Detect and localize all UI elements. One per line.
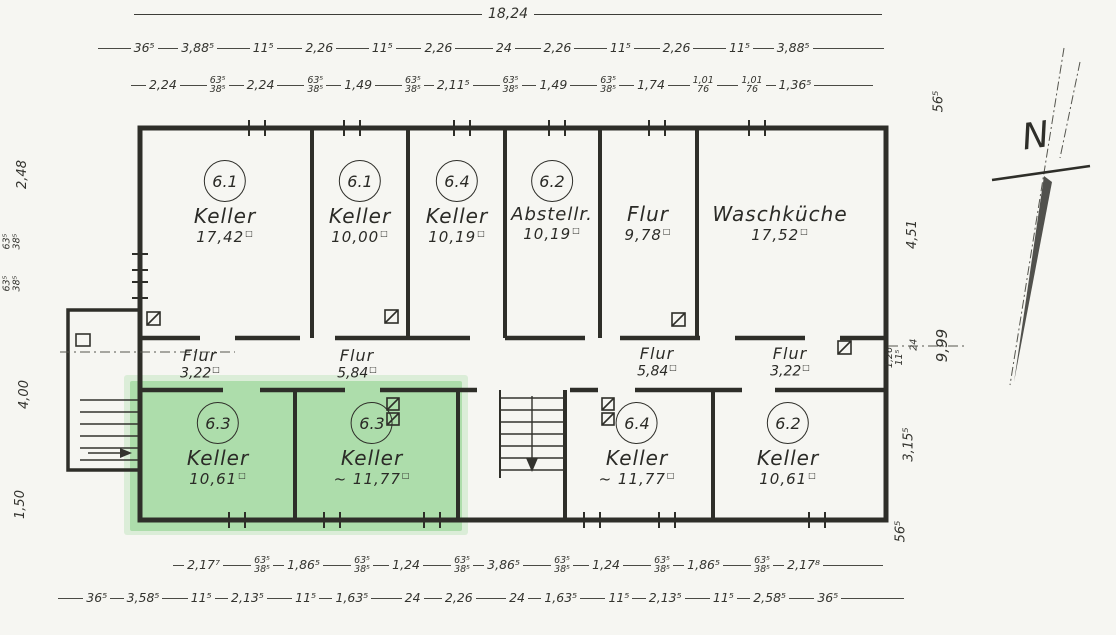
- dimension-label: 18,24: [488, 6, 528, 22]
- room-name: Waschküche: [712, 202, 847, 226]
- dimension-right-126: 1,26 11⁵: [885, 347, 904, 368]
- room-name: Flur: [770, 344, 810, 363]
- room-number: 6.4: [624, 414, 649, 433]
- north-needle: [1014, 176, 1052, 382]
- room-name: Abstellr.: [511, 204, 593, 225]
- north-arrow: N: [980, 40, 1116, 400]
- dimension-label: 3,86⁵: [487, 558, 520, 571]
- dimension-label: 1,01 76: [741, 76, 762, 95]
- dimension-label: 63⁵ 38⁵: [307, 76, 323, 95]
- room-name: Keller: [599, 446, 676, 470]
- room-number-circle: 6.4: [616, 402, 658, 444]
- dimension-left-pair-2: 63⁵ 38⁵: [2, 276, 21, 292]
- room-number-circle: 6.3: [351, 402, 393, 444]
- dimension-label: 36⁵: [86, 591, 107, 604]
- room-keller-6-3-b-highlighted: 6.3 Keller ~ 11,77□: [334, 402, 411, 488]
- dimension-label: 63⁵ 38⁵: [754, 556, 770, 575]
- dimension-label: 2,26: [424, 41, 452, 54]
- dimension-right-451: 4,51: [906, 220, 919, 249]
- room-number-circle: 6.2: [767, 402, 809, 444]
- room-area: ~ 11,77□: [334, 470, 411, 488]
- room-number: 6.1: [347, 172, 372, 191]
- dimension-left-400: 4,00: [18, 380, 31, 409]
- dimension-label: 11⁵: [608, 591, 629, 604]
- dimension-right-999: 9,99: [935, 329, 950, 362]
- north-crossbar: [992, 166, 1090, 180]
- corridor-flur-2: Flur 5,84□: [337, 346, 377, 382]
- room-number: 6.2: [775, 414, 800, 433]
- dimension-row-top-3: 2,2463⁵ 38⁵2,2463⁵ 38⁵1,4963⁵ 38⁵2,11⁵63…: [128, 70, 876, 100]
- dimension-left-pair-1: 63⁵ 38⁵: [2, 234, 21, 250]
- dimension-label: 63⁵ 38⁵: [503, 76, 519, 95]
- dimension-label: 2,26: [663, 41, 691, 54]
- room-name: Keller: [187, 446, 249, 470]
- dimension-total-top: 18,24: [128, 6, 888, 22]
- dimension-label: 2,26: [305, 41, 333, 54]
- dimension-label: 2,13⁵: [231, 591, 264, 604]
- dimension-label: 24: [405, 591, 421, 604]
- room-area: 5,84□: [337, 365, 377, 382]
- dimension-label: 2,17⁸: [787, 558, 820, 571]
- dimension-label: 63⁵ 38⁵: [454, 556, 470, 575]
- room-number-circle: 6.1: [339, 160, 381, 202]
- north-label: N: [1019, 114, 1051, 158]
- room-area: 10,61□: [757, 470, 819, 488]
- room-number-circle: 6.4: [436, 160, 478, 202]
- room-area: 3,22□: [180, 365, 220, 382]
- dimension-left-150: 1,50: [14, 490, 27, 519]
- room-keller-6-1-a: 6.1 Keller 17,42□: [194, 160, 256, 246]
- dimension-label: 36⁵: [817, 591, 838, 604]
- dimension-label: 63⁵ 38⁵: [210, 76, 226, 95]
- dimension-label: 11⁵: [295, 591, 316, 604]
- room-number-circle: 6.3: [197, 402, 239, 444]
- room-waschkueche: Waschküche 17,52□: [712, 160, 847, 244]
- room-name: Flur: [337, 346, 377, 365]
- dimension-label: 11⁵: [729, 41, 750, 54]
- room-name: Keller: [334, 446, 411, 470]
- dimension-label: 1,01 76: [693, 76, 714, 95]
- room-area: 10,19□: [426, 228, 488, 246]
- dimension-label: 2,26: [544, 41, 572, 54]
- corridor-flur-3: Flur 5,84□: [637, 344, 677, 380]
- room-keller-6-4-top: 6.4 Keller 10,19□: [426, 160, 488, 246]
- room-number: 6.2: [539, 172, 564, 191]
- room-name: Flur: [625, 202, 672, 226]
- dimension-left-248: 2,48: [16, 160, 29, 189]
- dimension-label: 2,26: [445, 591, 473, 604]
- middle-staircase: [500, 396, 565, 472]
- room-area: 10,61□: [187, 470, 249, 488]
- room-number-circle: 6.1: [204, 160, 246, 202]
- room-name: Keller: [329, 204, 391, 228]
- dimension-label: 1,24: [392, 558, 420, 571]
- dimension-label: 24: [509, 591, 525, 604]
- dimension-label: 63⁵ 38⁵: [405, 76, 421, 95]
- dimension-right-3155: 3,15⁵: [903, 427, 916, 461]
- room-area: 3,22□: [770, 363, 810, 380]
- room-area: 5,84□: [637, 363, 677, 380]
- dimension-label: 3,58⁵: [127, 591, 160, 604]
- room-area: 17,42□: [194, 228, 256, 246]
- dimension-label: 2,24: [149, 78, 177, 91]
- dimension-label: 2,17⁷: [187, 558, 220, 571]
- corridor-flur-1: Flur 3,22□: [180, 346, 220, 382]
- dimension-label: 63⁵ 38⁵: [254, 556, 270, 575]
- dimension-label: 24: [496, 41, 512, 54]
- room-area: ~ 11,77□: [599, 470, 676, 488]
- room-number-circle: 6.2: [531, 160, 573, 202]
- dimension-label: 63⁵ 38⁵: [600, 76, 616, 95]
- dimension-label: 2,24: [247, 78, 275, 91]
- dimension-label: 11⁵: [713, 591, 734, 604]
- room-area: 9,78□: [625, 226, 672, 244]
- dimension-label: 63⁵ 38⁵: [354, 556, 370, 575]
- room-area: 10,00□: [329, 228, 391, 246]
- room-name: Keller: [757, 446, 819, 470]
- dimension-label: 1,49: [539, 78, 567, 91]
- room-keller-6-2-bottom: 6.2 Keller 10,61□: [757, 402, 819, 488]
- dimension-label: 1,24: [592, 558, 620, 571]
- dimension-label: 2,11⁵: [437, 78, 470, 91]
- room-area: 17,52□: [712, 226, 847, 244]
- dimension-right-565-bottom: 56⁵: [894, 521, 907, 543]
- dimension-label: 1,63⁵: [335, 591, 368, 604]
- dimension-label: 11⁵: [253, 41, 274, 54]
- dimension-row-top-2: 36⁵3,88⁵11⁵2,2611⁵2,26242,2611⁵2,2611⁵3,…: [95, 33, 887, 63]
- dimension-label: 11⁵: [372, 41, 393, 54]
- dimension-label: 3,88⁵: [181, 41, 214, 54]
- dimension-row-bottom-2: 36⁵3,58⁵11⁵2,13⁵11⁵1,63⁵242,26241,63⁵11⁵…: [55, 583, 907, 613]
- room-keller-6-4-bottom: 6.4 Keller ~ 11,77□: [599, 402, 676, 488]
- room-name: Keller: [426, 204, 488, 228]
- room-area: 10,19□: [511, 225, 593, 243]
- room-name: Keller: [194, 204, 256, 228]
- room-keller-6-1-b: 6.1 Keller 10,00□: [329, 160, 391, 246]
- dimension-right-565-top: 56⁵: [932, 91, 945, 113]
- dimension-row-bottom-1: 2,17⁷63⁵ 38⁵1,86⁵63⁵ 38⁵1,2463⁵ 38⁵3,86⁵…: [170, 550, 886, 580]
- dimension-label: 11⁵: [610, 41, 631, 54]
- room-number: 6.4: [444, 172, 469, 191]
- dimension-label: 2,58⁵: [753, 591, 786, 604]
- room-name: Flur: [180, 346, 220, 365]
- dimension-right-24: 24: [909, 339, 919, 351]
- corridor-flur-4: Flur 3,22□: [770, 344, 810, 380]
- dimension-label: 63⁵ 38⁵: [554, 556, 570, 575]
- dimension-label: 1,86⁵: [687, 558, 720, 571]
- dimension-label: 11⁵: [191, 591, 212, 604]
- room-number: 6.1: [212, 172, 237, 191]
- dimension-label: 1,36⁵: [779, 78, 812, 91]
- dimension-label: 1,49: [344, 78, 372, 91]
- dimension-label: 63⁵ 38⁵: [654, 556, 670, 575]
- room-flur-top: Flur 9,78□: [625, 160, 672, 244]
- dimension-label: 1,74: [637, 78, 665, 91]
- dimension-label: 1,86⁵: [287, 558, 320, 571]
- dimension-label: 36⁵: [134, 41, 155, 54]
- dimension-label: 2,13⁵: [649, 591, 682, 604]
- floor-plan: N 18,24 36⁵3,88⁵11⁵2,2611⁵2,26242,2611⁵2…: [0, 0, 1116, 635]
- room-keller-6-3-a-highlighted: 6.3 Keller 10,61□: [187, 402, 249, 488]
- dimension-label: 1,63⁵: [544, 591, 577, 604]
- dimension-label: 3,88⁵: [777, 41, 810, 54]
- room-number: 6.3: [359, 414, 384, 433]
- room-name: Flur: [637, 344, 677, 363]
- room-number: 6.3: [205, 414, 230, 433]
- room-abstellraum-6-2: 6.2 Abstellr. 10,19□: [511, 160, 593, 243]
